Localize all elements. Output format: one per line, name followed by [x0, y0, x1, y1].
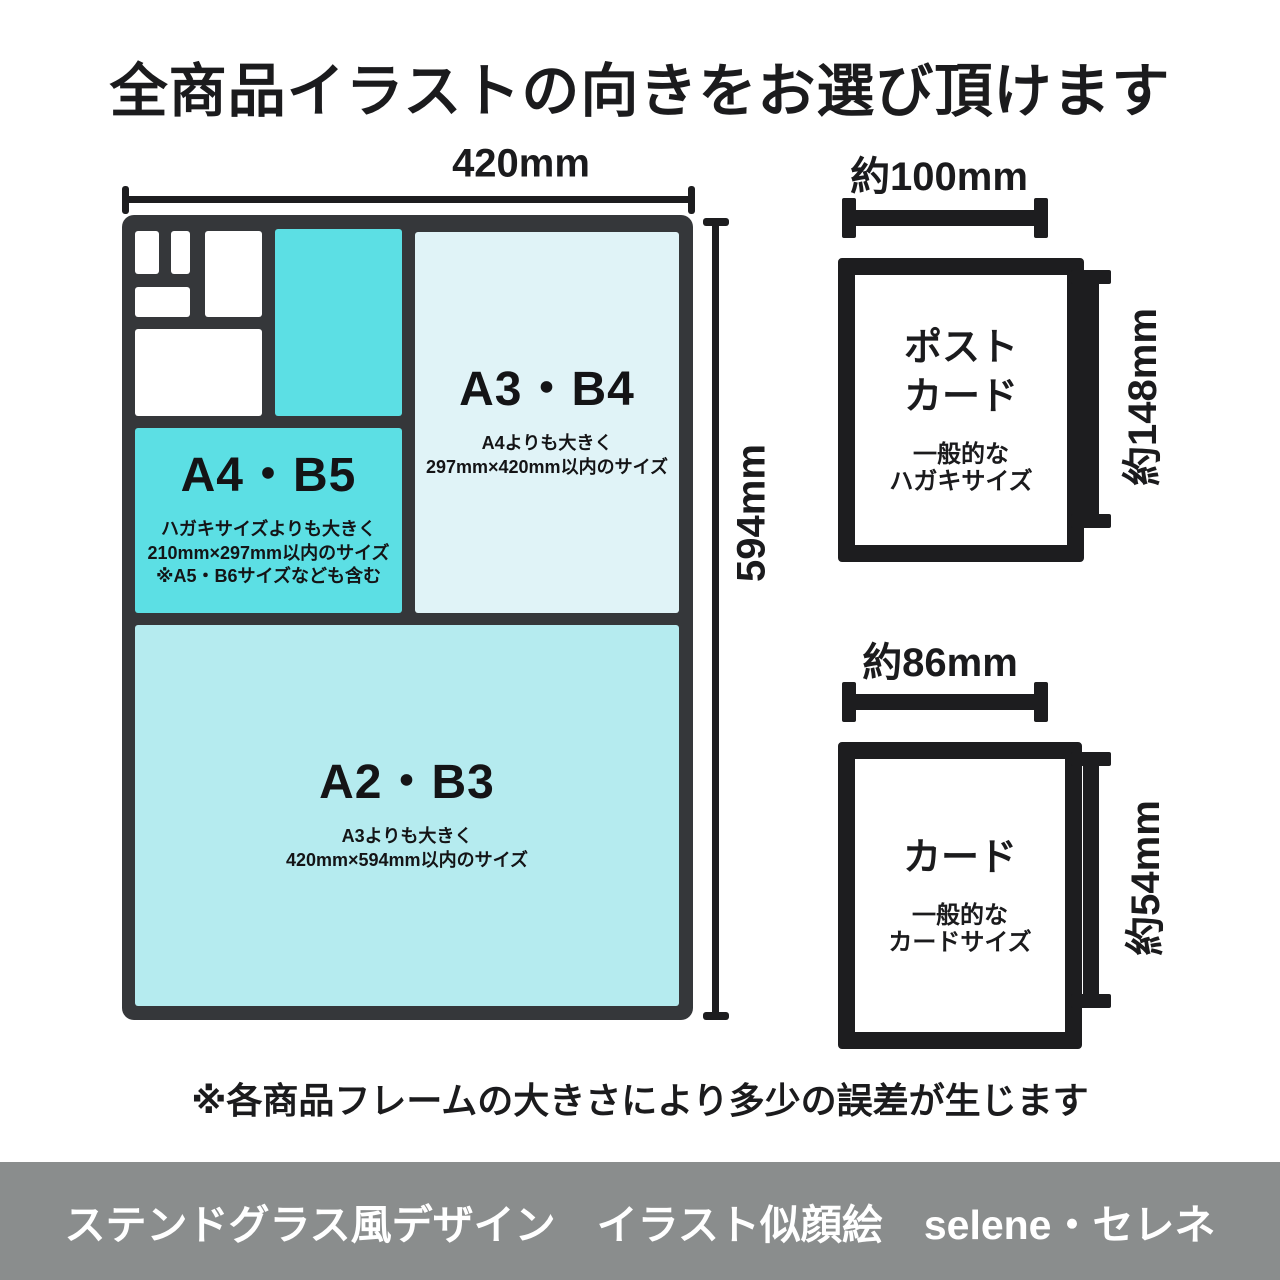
card-height-dimension-line: [1071, 752, 1111, 1008]
dimension-cap-right: [1034, 682, 1048, 722]
card-name: カード: [903, 834, 1017, 883]
size-comparison-frame: A3・B4 A4よりも大きく 297mm×420mm以内のサイズ A4・B5 ハ…: [122, 215, 693, 1020]
section-a2-b3-desc-2: 420mm×594mm以内のサイズ: [286, 849, 528, 873]
dimension-bar: [712, 220, 719, 1018]
section-a2-b3: A2・B3 A3よりも大きく 420mm×594mm以内のサイズ: [135, 625, 679, 1006]
section-a3-b4-label: A3・B4: [459, 366, 635, 414]
postcard-desc-line-2: ハガキサイズ: [889, 468, 1032, 496]
section-a4-b5-desc-2: 210mm×297mm以内のサイズ: [147, 542, 389, 566]
card-width-dimension-line: [842, 682, 1048, 722]
postcard-width-dimension-line: [842, 198, 1048, 238]
dimension-cap-right: [688, 186, 695, 214]
footer-bar: ステンドグラス風デザイン イラスト似顔絵 selene・セレネ: [0, 1162, 1280, 1280]
postcard-name: ポスト カード: [904, 324, 1018, 423]
section-a4-b5-desc-1: ハガキサイズよりも大きく: [161, 518, 376, 542]
frame-width-label: 420mm: [452, 142, 590, 187]
dimension-bar: [1083, 754, 1099, 1006]
card-desc-line-1: 一般的な: [888, 902, 1031, 930]
section-a3-b4-desc-1: A4よりも大きく: [482, 432, 613, 456]
footer-text: ステンドグラス風デザイン イラスト似顔絵 selene・セレネ: [64, 1191, 1215, 1251]
section-a4-b5: A4・B5 ハガキサイズよりも大きく 210mm×297mm以内のサイズ ※A5…: [135, 428, 402, 613]
card-desc-line-2: カードサイズ: [888, 929, 1031, 957]
postcard-desc: 一般的な ハガキサイズ: [889, 441, 1032, 496]
section-a3-b4: A3・B4 A4よりも大きく 297mm×420mm以内のサイズ: [415, 232, 679, 613]
frame-width-dimension-line: [122, 186, 695, 214]
card-frame: カード 一般的な カードサイズ: [838, 742, 1082, 1049]
card-desc: 一般的な カードサイズ: [888, 902, 1031, 957]
mini-size-box-4: [135, 287, 190, 317]
page-title: 全商品イラストの向きをお選び頂けます: [0, 44, 1280, 128]
postcard-height-dimension-line: [1071, 270, 1111, 528]
mini-size-box-2: [171, 231, 190, 274]
postcard-name-line-1: ポスト: [904, 324, 1018, 373]
dimension-bar: [1083, 272, 1099, 526]
postcard-width-label: 約100mm: [850, 144, 1028, 202]
postcard-name-line-2: カード: [904, 373, 1018, 422]
card-height-label: 約54mm: [1113, 800, 1171, 956]
postcard-frame: ポスト カード 一般的な ハガキサイズ: [838, 258, 1084, 562]
postcard-desc-line-1: 一般的な: [889, 441, 1032, 469]
section-a3-b4-desc-2: 297mm×420mm以内のサイズ: [426, 456, 668, 480]
card-width-label: 約86mm: [862, 630, 1018, 688]
dimension-bar: [844, 694, 1046, 710]
section-a4-b5-desc-3: ※A5・B6サイズなども含む: [156, 565, 381, 589]
dimension-bar: [124, 196, 693, 203]
mini-size-box-3: [205, 231, 262, 317]
section-a4-b5-label: A4・B5: [181, 452, 357, 500]
mini-size-box-5: [135, 329, 262, 416]
section-a2-b3-label: A2・B3: [319, 759, 495, 807]
teal-size-block: [275, 229, 402, 416]
section-a2-b3-desc-1: A3よりも大きく: [342, 825, 473, 849]
dimension-cap-right: [1034, 198, 1048, 238]
mini-size-box-1: [135, 231, 159, 274]
dimension-cap-bottom: [703, 1012, 729, 1020]
dimension-bar: [844, 210, 1046, 226]
dimension-cap-bottom: [1071, 514, 1111, 528]
postcard-height-label: 約148mm: [1110, 308, 1168, 486]
dimension-cap-bottom: [1071, 994, 1111, 1008]
frame-height-label: 594mm: [730, 444, 775, 582]
frame-height-dimension-line: [703, 218, 729, 1020]
disclaimer-note: ※各商品フレームの大きさにより多少の誤差が生じます: [0, 1072, 1280, 1124]
